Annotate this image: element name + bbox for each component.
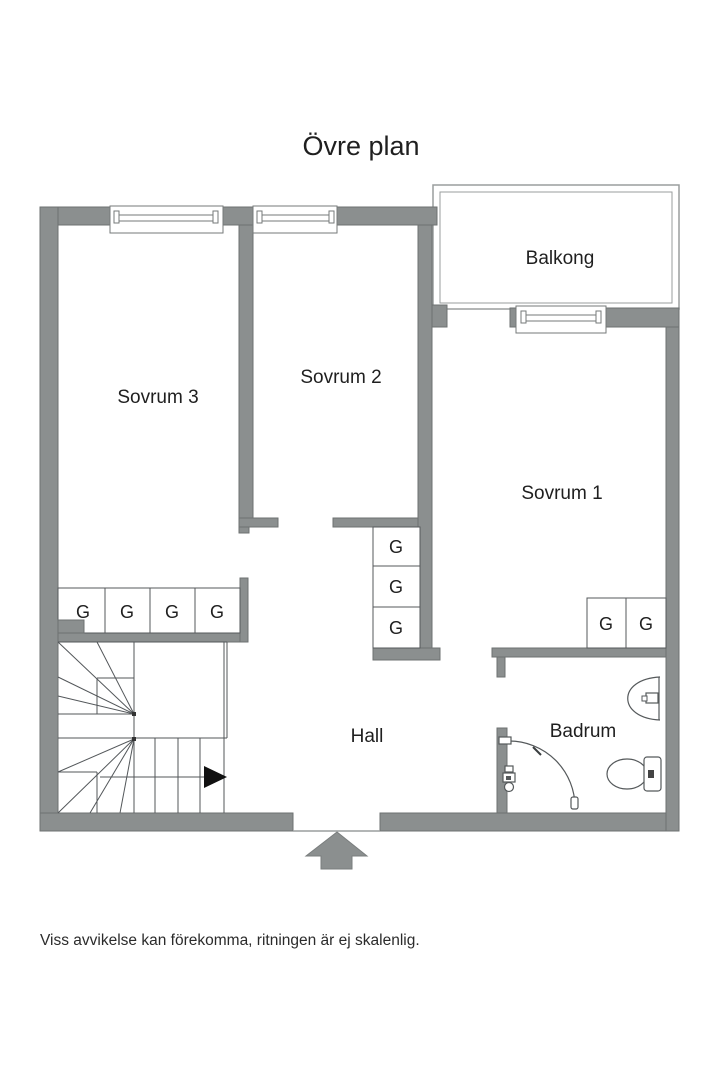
door-swing-arc — [509, 741, 575, 807]
wardrobes-hall: G G G — [373, 527, 420, 648]
stair-hub-dot — [132, 737, 136, 741]
sink-icon — [628, 677, 660, 720]
floorplan-page: G G G G G G G G G — [0, 0, 720, 1080]
wall-segment-top — [40, 207, 437, 225]
wall-segment-bottom-left — [40, 813, 293, 831]
wall-segment-right — [666, 308, 679, 831]
bathroom-fixtures — [499, 677, 661, 809]
wardrobe-label: G — [120, 602, 134, 622]
room-label-sovrum2: Sovrum 2 — [300, 367, 381, 388]
wall-segment-bottom-right — [380, 813, 679, 831]
wall-segment-under-balcony — [605, 308, 679, 327]
wardrobe-label: G — [76, 602, 90, 622]
tap-icon — [503, 766, 515, 792]
wardrobe-label: G — [389, 537, 403, 557]
wall-closet-south — [58, 633, 248, 642]
wardrobe-label: G — [210, 602, 224, 622]
room-label-sovrum1: Sovrum 1 — [521, 483, 602, 504]
wardrobe-label: G — [165, 602, 179, 622]
wardrobe-label: G — [639, 614, 653, 634]
room-label-hall: Hall — [351, 726, 384, 747]
room-label-badrum: Badrum — [550, 721, 617, 742]
toilet-icon — [607, 757, 661, 791]
disclaimer-text: Viss avvikelse kan förekomma, ritningen … — [40, 932, 420, 949]
door-leaf-end — [499, 737, 511, 744]
room-label-sovrum3: Sovrum 3 — [117, 387, 198, 408]
wall-sovrum3-east — [239, 225, 253, 518]
balcony-outline — [433, 185, 679, 309]
wardrobe-label: G — [389, 577, 403, 597]
balcony-outer-rail — [433, 185, 679, 309]
wall-sovrum3-east-step — [239, 527, 249, 533]
wall-hall-closet-south — [373, 648, 440, 660]
entrance — [293, 831, 380, 869]
wall-badrum-north — [492, 648, 666, 657]
floorplan-drawing: G G G G G G G G G — [0, 0, 720, 1080]
staircase — [58, 642, 227, 813]
wall-closet-jamb — [240, 578, 248, 642]
stair-hub-dot — [132, 712, 136, 716]
wall-segment-left — [40, 207, 58, 831]
door-leaf-end — [571, 797, 578, 809]
window-symbol-sovrum1-balcony — [516, 306, 606, 333]
room-label-balkong: Balkong — [526, 248, 595, 269]
wardrobe-label: G — [599, 614, 613, 634]
wall-badrum-door-jamb — [497, 657, 505, 677]
wall-sovrum3-east-foot — [239, 518, 278, 527]
page-title: Övre plan — [302, 131, 419, 161]
wardrobes-sovrum1: G G — [587, 598, 666, 648]
entrance-arrow-icon — [306, 832, 367, 869]
wardrobe-label: G — [389, 618, 403, 638]
window-symbol-sovrum3 — [110, 206, 223, 233]
wall-jamb-balcony-door — [430, 305, 447, 327]
wardrobes-sovrum3: G G G G — [58, 588, 240, 633]
wall-sovrum2-south — [333, 518, 418, 527]
window-symbol-sovrum2 — [253, 206, 337, 233]
